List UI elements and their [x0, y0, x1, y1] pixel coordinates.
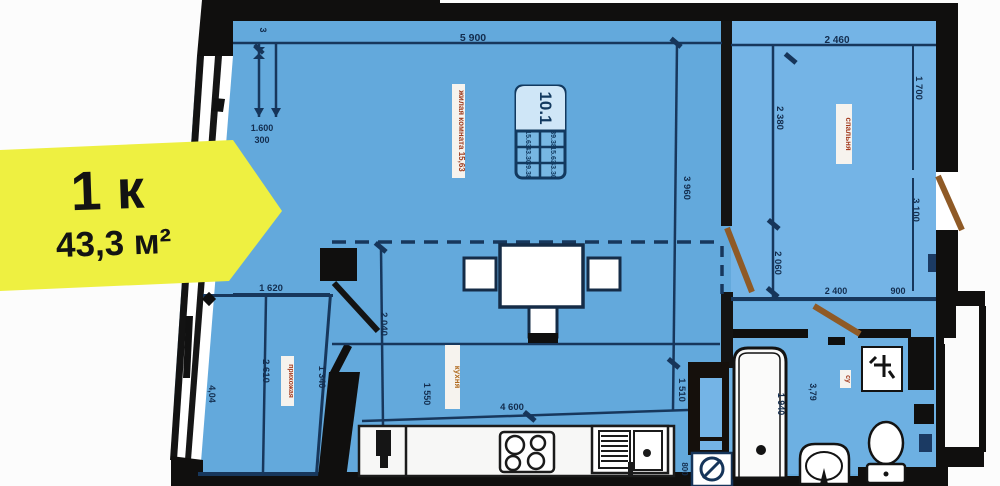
svg-text:3,79: 3,79 [808, 383, 818, 401]
svg-text:1 550: 1 550 [422, 383, 432, 406]
svg-text:2 040: 2 040 [378, 312, 389, 336]
svg-text:5 900: 5 900 [460, 32, 486, 44]
svg-text:1 700: 1 700 [913, 76, 924, 100]
svg-text:39.38: 39.38 [524, 161, 531, 179]
svg-text:15.63: 15.63 [524, 130, 531, 148]
svg-text:39.38: 39.38 [549, 130, 556, 148]
svg-text:4 600: 4 600 [500, 402, 524, 413]
svg-text:800: 800 [680, 462, 689, 476]
svg-text:2 610: 2 610 [260, 359, 271, 383]
svg-text:жилая комната 15,63: жилая комната 15,63 [457, 89, 466, 172]
svg-text:1 к: 1 к [70, 158, 146, 223]
svg-text:900: 900 [890, 286, 905, 296]
svg-text:1 940: 1 940 [776, 393, 786, 416]
svg-text:2 380: 2 380 [774, 106, 785, 130]
svg-text:су: су [844, 375, 851, 383]
svg-text:1 510: 1 510 [676, 378, 687, 402]
svg-text:43,3 м²: 43,3 м² [55, 222, 172, 265]
svg-text:43.30: 43.30 [549, 161, 556, 179]
svg-text:2 400: 2 400 [825, 286, 848, 296]
svg-text:1 340: 1 340 [317, 366, 327, 389]
svg-text:кухня: кухня [453, 366, 462, 389]
svg-text:3 960: 3 960 [681, 176, 692, 200]
svg-text:2 460: 2 460 [824, 35, 849, 46]
svg-text:спальня: спальня [844, 117, 853, 151]
svg-text:2 060: 2 060 [772, 251, 783, 275]
svg-text:3 100: 3 100 [910, 198, 921, 222]
svg-text:4,04: 4,04 [207, 385, 217, 403]
svg-text:прихожая: прихожая [287, 364, 294, 398]
svg-text:10.1: 10.1 [536, 91, 555, 124]
